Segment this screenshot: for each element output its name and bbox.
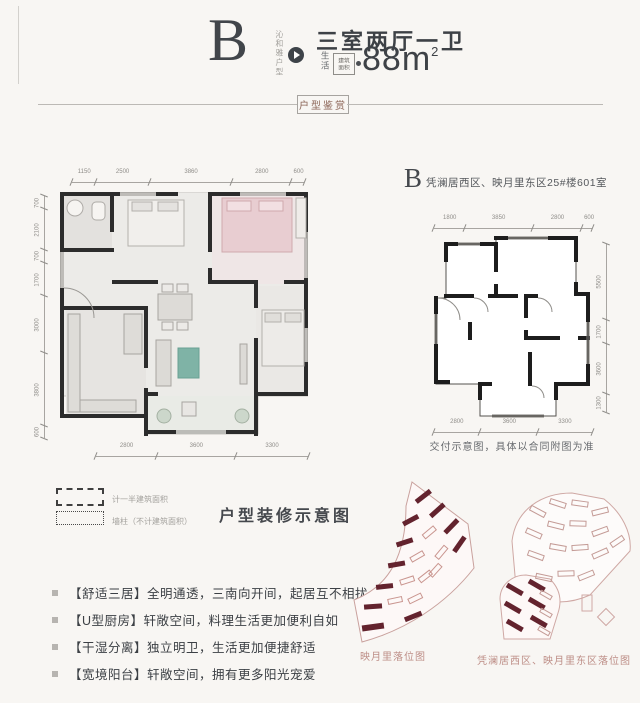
dim-label: 3600 — [173, 442, 220, 449]
left-plan-left-dimensions: 700 2100 700 1700 3000 3800 600 — [38, 196, 53, 438]
dim-label: 2800 — [108, 442, 145, 449]
delivery-floor-plan — [428, 234, 598, 422]
feature-item: 【干湿分离】独立明卫，生活更加便捷舒适 — [52, 637, 368, 656]
feature-list: 【舒适三居】全明通透，三南向开间，起居互不相扰 【U型厨房】轩敞空间，料理生活更… — [52, 583, 368, 691]
play-triangle-icon — [294, 51, 300, 59]
delivery-caption: 交付示意图，具体以合同附图为准 — [414, 438, 610, 453]
legend-half-area-label: 计一半建筑面积 — [112, 493, 168, 505]
left-plan-top-dimensions: 1150 2500 3860 2800 600 — [72, 174, 304, 183]
right-plan-right-dimensions: 5500 1700 3600 1300 — [600, 244, 615, 412]
decorated-plan-section-title: 户型装修示意图 — [219, 502, 352, 526]
sink-icon — [67, 200, 83, 216]
bullet-icon — [52, 590, 58, 596]
tv-cabinet-icon — [240, 344, 247, 384]
decorated-floor-plan — [60, 192, 308, 442]
dim-label: 2500 — [107, 168, 139, 175]
floor-area-value: 88m2 — [362, 40, 439, 79]
section-badge: 户型鉴赏 — [297, 95, 349, 114]
area-label-line2: 面积 — [338, 64, 350, 70]
dim-label: 700 — [34, 251, 41, 261]
bed-icon — [262, 310, 304, 366]
dim-label: 3850 — [479, 214, 519, 221]
feature-item: 【U型厨房】轩敞空间，料理生活更加便利自如 — [52, 610, 368, 629]
dim-label: 1300 — [596, 396, 603, 409]
life-label: 生活 — [317, 51, 330, 71]
feature-item: 【宽境阳台】轩敞空间，拥有更多阳光宠爱 — [52, 664, 368, 683]
area-superscript: 2 — [431, 44, 439, 59]
dim-label: 3300 — [549, 418, 581, 425]
dim-label: 3860 — [166, 168, 215, 175]
legend-dotted-box — [56, 511, 104, 525]
right-plan-address: 凭澜居西区、映月里东区25#楼601室 — [426, 175, 607, 190]
bed-icon — [128, 200, 184, 246]
floor-area-label-box: 建筑 面积 — [333, 53, 355, 75]
plant-icon — [235, 409, 249, 423]
dim-label: 600 — [34, 427, 41, 437]
right-plan-letter: B — [404, 165, 422, 192]
site-caption-yingyueli: 映月里落位图 — [360, 648, 426, 663]
dim-label: 2800 — [244, 168, 280, 175]
dim-label: 2800 — [443, 418, 470, 425]
vertical-tagline: 沁和雅户型 — [272, 30, 284, 77]
site-plan-pinglanju — [492, 487, 638, 649]
coffee-table-icon — [178, 348, 199, 378]
floorplan-page: B 沁和雅户型 三室两厅一卫 生活 建筑 面积 88m2 户型鉴赏 1150 2… — [0, 0, 640, 703]
dim-label: 3600 — [491, 418, 526, 425]
section-badge-label: 户型鉴赏 — [299, 97, 347, 112]
dim-label: 2100 — [34, 223, 41, 236]
dim-label: 1700 — [596, 325, 603, 338]
divider-line-right — [347, 104, 603, 105]
right-plan-top-dimensions: 1800 3850 2800 600 — [434, 220, 592, 229]
right-plan-title: B 凭澜居西区、映月里东区25#楼601室 — [404, 165, 607, 192]
dim-label: 3600 — [596, 362, 603, 375]
left-plan-bottom-dimensions: 2800 3600 3300 — [96, 448, 308, 457]
dim-label: 3000 — [34, 318, 41, 331]
dim-label: 3300 — [250, 442, 293, 449]
area-label-line1: 建筑 — [338, 57, 350, 63]
play-icon[interactable] — [288, 47, 304, 63]
dim-label: 5500 — [596, 275, 603, 288]
dim-label: 600 — [584, 214, 590, 221]
right-plan-bottom-dimensions: 2800 3600 3300 — [434, 424, 592, 433]
dot-icon — [356, 61, 361, 66]
diamond-icon — [598, 609, 615, 626]
dim-label: 3800 — [34, 383, 41, 396]
unit-type-letter: B — [208, 10, 248, 70]
plant-icon — [157, 409, 171, 423]
dim-label: 2800 — [542, 214, 571, 221]
decorative-corner-line — [18, 6, 19, 84]
legend-dashed-box — [56, 488, 104, 506]
divider-line-left — [38, 104, 297, 105]
washer-icon — [182, 402, 196, 416]
toilet-icon — [92, 202, 105, 220]
dim-label: 1800 — [440, 214, 459, 221]
dim-label: 1150 — [77, 168, 92, 175]
site-caption-pinglanju: 凭澜居西区、映月里东区落位图 — [477, 652, 631, 667]
site-plan-yingyueli — [352, 478, 490, 646]
bullet-icon — [52, 617, 58, 623]
bullet-icon — [52, 671, 58, 677]
dim-label: 600 — [294, 168, 302, 175]
dim-label: 1700 — [34, 273, 41, 286]
bullet-icon — [52, 644, 58, 650]
feature-item: 【舒适三居】全明通透，三南向开间，起居互不相扰 — [52, 583, 368, 602]
legend-wall-column-label: 墙柱（不计建筑面积） — [112, 515, 192, 527]
